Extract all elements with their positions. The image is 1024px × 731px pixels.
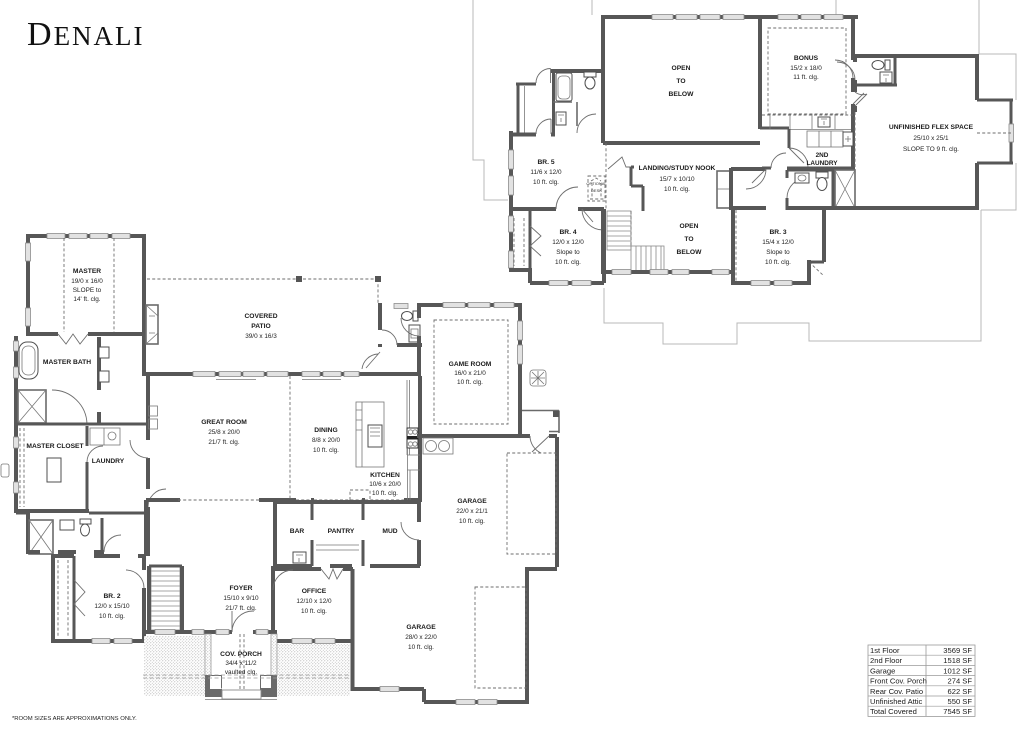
svg-text:10 ft. clg.: 10 ft. clg. [313, 447, 339, 454]
svg-text:Rear Cov. Patio: Rear Cov. Patio [870, 687, 923, 696]
svg-text:COV. PORCH: COV. PORCH [220, 651, 262, 658]
svg-text:10 ft. clg.: 10 ft. clg. [457, 379, 483, 386]
svg-text:GAME ROOM: GAME ROOM [449, 361, 492, 368]
svg-text:PANTRY: PANTRY [328, 528, 355, 535]
svg-text:12/10 x 12/0: 12/10 x 12/0 [296, 598, 332, 605]
svg-text:LAUNDRY: LAUNDRY [806, 160, 838, 167]
svg-text:622 SF: 622 SF [948, 687, 973, 696]
svg-text:COVERED: COVERED [244, 313, 277, 320]
svg-text:10 ft. clg.: 10 ft. clg. [459, 518, 485, 525]
svg-text:SLOPE TO 9 ft. clg.: SLOPE TO 9 ft. clg. [903, 146, 959, 153]
svg-text:LAUNDRY: LAUNDRY [92, 458, 125, 465]
svg-text:DENALI: DENALI [27, 16, 145, 53]
svg-text:OPEN: OPEN [672, 65, 691, 72]
svg-text:10 ft. clg.: 10 ft. clg. [408, 644, 434, 651]
svg-text:28/0 x 22/0: 28/0 x 22/0 [405, 634, 437, 641]
svg-text:Front Cov. Porch: Front Cov. Porch [870, 677, 927, 686]
svg-text:OPTIONAL: OPTIONAL [586, 181, 607, 186]
svg-text:12/0 x 15/10: 12/0 x 15/10 [94, 603, 130, 610]
svg-text:GARAGE: GARAGE [406, 624, 436, 631]
svg-text:LANDING/STUDY NOOK: LANDING/STUDY NOOK [639, 165, 716, 172]
svg-text:BELOW: BELOW [669, 91, 695, 98]
svg-text:Garage: Garage [870, 666, 895, 675]
svg-text:15/4 x 12/0: 15/4 x 12/0 [762, 239, 794, 246]
svg-text:7545 SF: 7545 SF [943, 707, 972, 716]
svg-text:10/6 x 20/0: 10/6 x 20/0 [369, 481, 401, 488]
svg-text:10 ft. clg.: 10 ft. clg. [372, 490, 398, 497]
svg-text:MASTER: MASTER [73, 268, 101, 275]
svg-text:34/4 x 11/2: 34/4 x 11/2 [225, 660, 257, 667]
svg-text:8/8 x 20/0: 8/8 x 20/0 [312, 437, 341, 444]
svg-text:PATIO: PATIO [251, 323, 270, 330]
svg-text:15/2 x 18/0: 15/2 x 18/0 [790, 65, 822, 72]
svg-text:SLOPE to: SLOPE to [73, 287, 102, 294]
svg-text:BR. 4: BR. 4 [559, 229, 576, 236]
svg-text:15/7 x 10/10: 15/7 x 10/10 [659, 176, 695, 183]
svg-text:1518 SF: 1518 SF [943, 656, 972, 665]
svg-text:DINING: DINING [314, 427, 337, 434]
svg-text:25/8 x 20/0: 25/8 x 20/0 [208, 429, 240, 436]
svg-text:OFFICE: OFFICE [302, 588, 327, 595]
svg-text:BONUS: BONUS [794, 55, 819, 62]
svg-text:Slope to: Slope to [556, 249, 580, 256]
svg-text:1012 SF: 1012 SF [943, 666, 972, 675]
svg-text:UNFINISHED FLEX SPACE: UNFINISHED FLEX SPACE [889, 124, 974, 131]
svg-text:2nd Floor: 2nd Floor [870, 656, 903, 665]
svg-text:TO: TO [676, 78, 685, 85]
svg-text:MASTER BATH: MASTER BATH [43, 359, 91, 366]
svg-text:1st Floor: 1st Floor [870, 646, 900, 655]
svg-text:11 ft. clg.: 11 ft. clg. [793, 74, 819, 81]
svg-text:Slope to: Slope to [766, 249, 790, 256]
svg-text:Unfinished Attic: Unfinished Attic [870, 697, 923, 706]
svg-text:15/10 x 9/10: 15/10 x 9/10 [223, 595, 259, 602]
svg-text:10 ft. clg.: 10 ft. clg. [664, 186, 690, 193]
svg-text:BR. 2: BR. 2 [103, 593, 120, 600]
svg-text:10 ft. clg.: 10 ft. clg. [555, 259, 581, 266]
svg-text:MUD: MUD [382, 528, 397, 535]
svg-text:14' ft. clg.: 14' ft. clg. [73, 296, 100, 303]
svg-text:GARAGE: GARAGE [457, 498, 487, 505]
svg-text:25/10 x 25/1: 25/10 x 25/1 [913, 135, 949, 142]
svg-text:Total Covered: Total Covered [870, 707, 917, 716]
svg-text:OPEN: OPEN [680, 223, 699, 230]
svg-text:22/0 x 21/1: 22/0 x 21/1 [456, 508, 488, 515]
svg-text:19/0 x 16/0: 19/0 x 16/0 [71, 278, 103, 285]
svg-text:GREAT ROOM: GREAT ROOM [201, 419, 247, 426]
svg-text:550 SF: 550 SF [948, 697, 973, 706]
svg-text:TO: TO [684, 236, 693, 243]
svg-text:DESK: DESK [591, 188, 602, 193]
svg-text:FOYER: FOYER [229, 585, 252, 592]
svg-text:BR. 3: BR. 3 [769, 229, 786, 236]
svg-text:*ROOM SIZES ARE APPROXIMATIONS: *ROOM SIZES ARE APPROXIMATIONS ONLY. [12, 716, 137, 722]
svg-text:10 ft. clg.: 10 ft. clg. [301, 608, 327, 615]
svg-text:MASTER CLOSET: MASTER CLOSET [26, 443, 84, 450]
svg-text:11/6 x 12/0: 11/6 x 12/0 [530, 169, 562, 176]
svg-text:10 ft. clg.: 10 ft. clg. [99, 613, 125, 620]
svg-text:BR. 5: BR. 5 [537, 159, 554, 166]
svg-text:12/0 x 12/0: 12/0 x 12/0 [552, 239, 584, 246]
svg-text:39/0 x 16/3: 39/0 x 16/3 [245, 333, 277, 340]
svg-text:BELOW: BELOW [677, 249, 703, 256]
svg-text:10 ft. clg.: 10 ft. clg. [533, 179, 559, 186]
svg-text:BAR: BAR [290, 528, 305, 535]
svg-text:21/7 ft. clg.: 21/7 ft. clg. [208, 439, 239, 446]
svg-text:KITCHEN: KITCHEN [370, 472, 400, 479]
svg-text:3569 SF: 3569 SF [943, 646, 972, 655]
svg-text:2ND: 2ND [816, 152, 829, 159]
svg-text:274 SF: 274 SF [948, 677, 973, 686]
svg-text:10 ft. clg.: 10 ft. clg. [765, 259, 791, 266]
svg-text:16/0 x 21/0: 16/0 x 21/0 [454, 370, 486, 377]
